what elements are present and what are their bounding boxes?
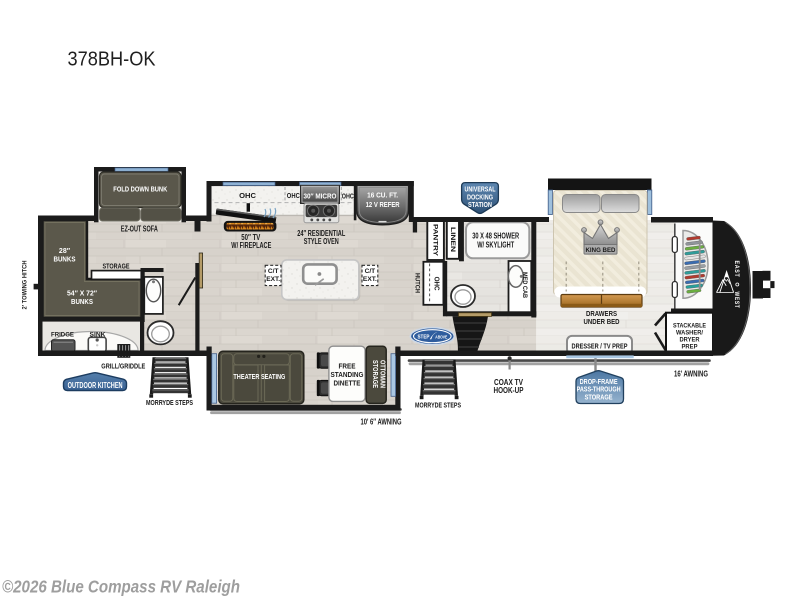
svg-text:BUNKS: BUNKS (54, 256, 76, 263)
svg-text:PREP: PREP (682, 344, 699, 351)
svg-text:GRILL/GRIDDLE: GRILL/GRIDDLE (101, 361, 145, 370)
svg-text:OUTDOOR KITCHEN: OUTDOOR KITCHEN (68, 381, 123, 390)
svg-text:30 X 48 SHOWER: 30 X 48 SHOWER (472, 232, 519, 241)
svg-text:THEATER SEATING: THEATER SEATING (233, 372, 285, 381)
svg-text:EAST: EAST (733, 261, 739, 278)
svg-text:FRIDGE: FRIDGE (51, 332, 74, 339)
svg-text:DRYER: DRYER (680, 337, 700, 344)
svg-text:OHC: OHC (287, 191, 300, 200)
svg-text:30″ MICRO: 30″ MICRO (304, 193, 337, 200)
svg-text:STYLE OVEN: STYLE OVEN (304, 237, 339, 246)
svg-text:DINETTE: DINETTE (334, 379, 361, 388)
svg-text:OTTOMAN: OTTOMAN (378, 360, 385, 388)
svg-text:MED CAB: MED CAB (521, 272, 528, 298)
svg-text:C/T: C/T (268, 268, 279, 275)
svg-text:KING BED: KING BED (586, 247, 616, 254)
svg-text:EXT.: EXT. (266, 276, 280, 283)
svg-text:DRESSER / TV PREP: DRESSER / TV PREP (572, 342, 628, 351)
svg-text:10' 6″ AWNING: 10' 6″ AWNING (361, 418, 402, 427)
svg-text:EXT.: EXT. (363, 276, 377, 283)
svg-text:16' AWNING: 16' AWNING (674, 370, 708, 379)
svg-text:W/ FIREPLACE: W/ FIREPLACE (231, 241, 271, 250)
svg-text:28″: 28″ (59, 248, 71, 255)
svg-text:54″ X 72″: 54″ X 72″ (67, 291, 98, 298)
svg-text:STORAGE: STORAGE (585, 392, 613, 401)
svg-text:EZ-OUT SOFA: EZ-OUT SOFA (121, 224, 158, 233)
svg-text:OHC: OHC (239, 191, 256, 200)
svg-text:C/T: C/T (365, 268, 376, 275)
svg-text:ABOVE: ABOVE (435, 334, 447, 339)
svg-text:FOLD DOWN BUNK: FOLD DOWN BUNK (113, 187, 167, 194)
svg-text:16 CU. FT.: 16 CU. FT. (367, 191, 398, 200)
svg-text:OHC: OHC (342, 192, 354, 201)
svg-text:WEST: WEST (733, 292, 739, 309)
svg-text:DRAWERS: DRAWERS (586, 311, 617, 318)
svg-text:378BH-OK: 378BH-OK (68, 49, 157, 71)
svg-text:LINEN: LINEN (449, 227, 456, 252)
svg-text:STACKABLE: STACKABLE (673, 323, 707, 330)
svg-text:W/ SKYLIGHT: W/ SKYLIGHT (477, 241, 514, 250)
svg-text:UNDER BED: UNDER BED (584, 319, 620, 326)
svg-text:BUNKS: BUNKS (71, 299, 93, 306)
svg-text:STORAGE: STORAGE (371, 360, 378, 388)
svg-text:STEP: STEP (418, 334, 430, 340)
svg-text:HUTCH: HUTCH (414, 273, 421, 293)
svg-text:MORRYDE STEPS: MORRYDE STEPS (146, 398, 193, 407)
svg-text:STATION: STATION (468, 200, 492, 209)
svg-text:STORAGE: STORAGE (103, 263, 130, 270)
svg-text:MORRYDE STEPS: MORRYDE STEPS (415, 400, 461, 409)
svg-text:WASHER/: WASHER/ (676, 330, 703, 337)
svg-text:OHC: OHC (433, 277, 440, 291)
svg-text:PANTRY: PANTRY (431, 224, 438, 257)
svg-text:HOOK-UP: HOOK-UP (494, 386, 524, 395)
svg-text:©2026 Blue Compass RV Raleigh: ©2026 Blue Compass RV Raleigh (2, 577, 240, 597)
svg-text:12 V REFER: 12 V REFER (366, 200, 401, 209)
svg-text:2' TOWING HITCH: 2' TOWING HITCH (21, 260, 28, 309)
